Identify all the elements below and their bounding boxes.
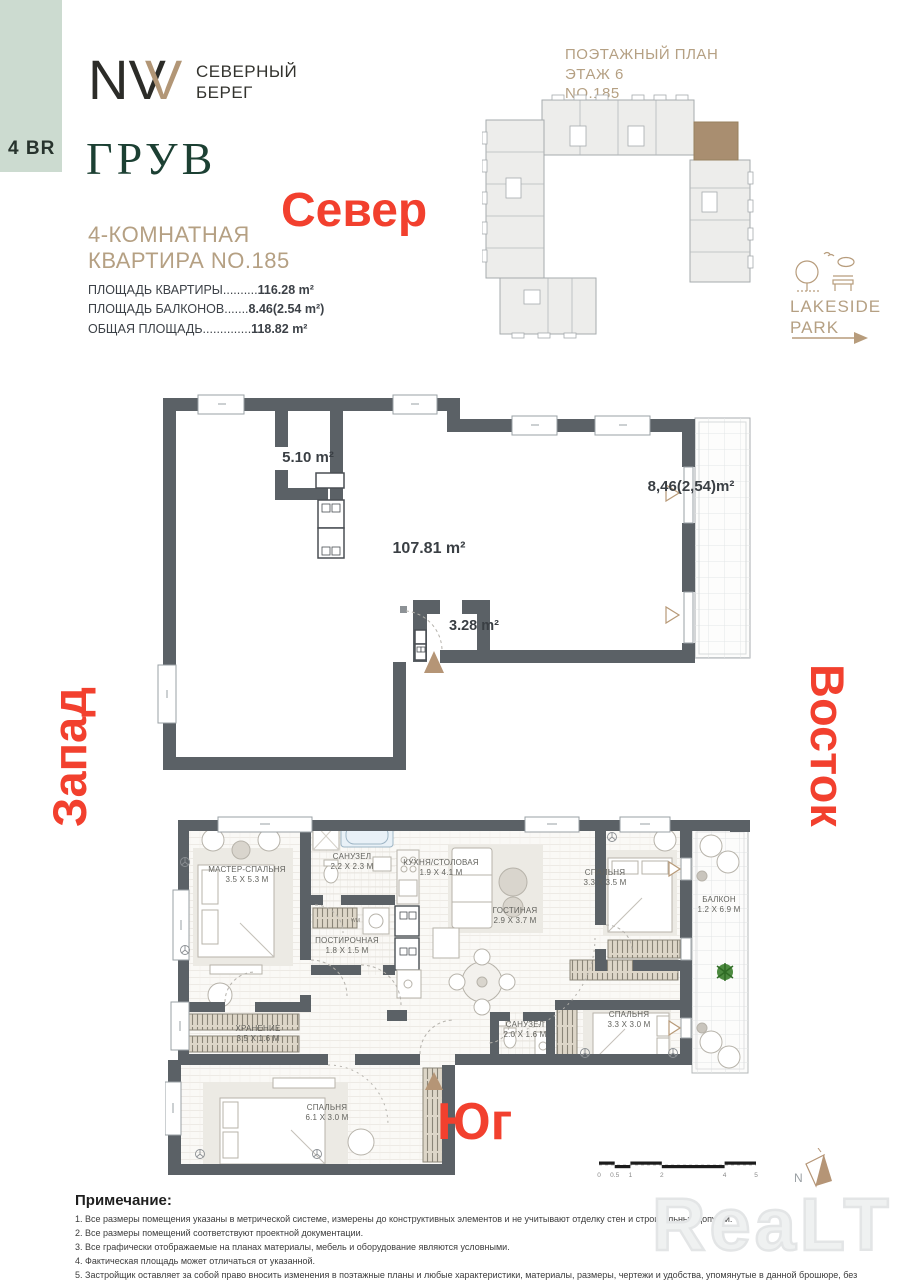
room-label-master-bedroom: МАСТЕР-СПАЛЬНЯ 3.5 x 5.3 m [197, 865, 297, 886]
schematic-shafts [316, 473, 426, 660]
balcony-door-arrows [666, 485, 679, 623]
area-label-small-room: 5.10 m² [268, 449, 348, 466]
floor-key-line2: ЭТАЖ 6 [565, 65, 718, 85]
area-label-balcony: 8,46(2,54)m² [631, 478, 751, 495]
scale-bar: 0 0.5 1 2 4 5 [597, 1155, 762, 1181]
spec-dots: .............. [203, 322, 252, 336]
spec-label: ПЛОЩАДЬ КВАРТИРЫ [88, 283, 223, 297]
area-specs: ПЛОЩАДЬ КВАРТИРЫ..........116.28 m² ПЛОЩ… [88, 281, 324, 339]
apartment-title: 4-КОМНАТНАЯ КВАРТИРА NO.185 [88, 222, 290, 275]
highlighted-unit [694, 122, 738, 160]
room-label-bedroom-right: СПАЛЬНЯ 3.3 x 3.0 m [594, 1010, 664, 1031]
floor-key-line1: ПОЭТАЖНЫЙ ПЛАН [565, 45, 718, 65]
washer-label: WM [351, 918, 360, 924]
note-item-5: 5. Застройщик оставляет за собой право в… [75, 1269, 895, 1280]
scale-tick-05: 0.5 [610, 1172, 619, 1179]
tree-bench-cloud-icons [796, 253, 854, 292]
room-label-storage: ХРАНЕНИЕ 3.5 x 1.6 m [220, 1024, 296, 1045]
project-name: ГРУВ [86, 132, 216, 185]
apartment-title-line1: 4-КОМНАТНАЯ [88, 222, 290, 248]
area-label-bath: 3.28 m² [434, 618, 514, 634]
room-label-balcony: БАЛКОН 1.2 x 6.9 m [689, 895, 749, 916]
direction-south: Юг [437, 1092, 512, 1152]
room-label-bedroom-bottom: СПАЛЬНЯ 6.1 x 3.0 m [292, 1103, 362, 1124]
room-label-kitchen-dining: КУХНЯ/СТОЛОВАЯ 1.9 x 4.1 m [403, 858, 479, 879]
brochure-page: 4 BR N V V СЕВЕРНЫЙ БЕРЕГ ГРУВ 4-КОМНАТН… [0, 0, 905, 1280]
spec-row-apartment-area: ПЛОЩАДЬ КВАРТИРЫ..........116.28 m² [88, 281, 324, 300]
room-label-bathroom-1: САНУЗЕЛ 2.2 x 2.3 m [317, 852, 387, 873]
lakeside-line1: LAKESIDE [790, 296, 881, 317]
schematic-walls [163, 398, 695, 770]
scale-tick-5: 5 [754, 1172, 758, 1179]
schematic-floor-plan: 5.10 m² 107.81 m² 3.28 m² 8,46(2,54)m² [148, 385, 770, 805]
brand-name-line2: БЕРЕГ [196, 83, 297, 104]
direction-north: Север [281, 183, 427, 238]
spec-label: ОБЩАЯ ПЛОЩАДЬ [88, 322, 203, 336]
schematic-balcony [695, 418, 750, 658]
room-label-laundry: ПОСТИРОЧНАЯ 1.8 x 1.5 m [307, 936, 387, 957]
spec-label: ПЛОЩАДЬ БАЛКОНОВ [88, 302, 224, 316]
spec-value: 8.46(2.54 m²) [249, 302, 325, 316]
direction-west: Запад [42, 652, 100, 862]
realt-watermark: ReaLT [652, 1182, 893, 1267]
scale-tick-4: 4 [723, 1172, 727, 1179]
room-label-bathroom-2: САНУЗЕЛ 2.0 x 1.6 m [490, 1020, 560, 1041]
scale-bar-ticks: 0 0.5 1 2 4 5 [597, 1172, 758, 1179]
scale-tick-2: 2 [660, 1172, 664, 1179]
spec-value: 118.82 m² [251, 322, 307, 336]
building-minimap [482, 92, 762, 344]
lakeside-park-icons [791, 250, 869, 296]
area-label-main: 107.81 m² [379, 540, 479, 558]
spec-dots: .......... [223, 283, 258, 297]
apartment-title-line2: КВАРТИРА NO.185 [88, 248, 290, 274]
spec-dots: ....... [224, 302, 248, 316]
direction-east: Восток [793, 628, 855, 863]
brand-name-line1: СЕВЕРНЫЙ [196, 62, 297, 83]
spec-row-balcony-area: ПЛОЩАДЬ БАЛКОНОВ.......8.46(2.54 m²) [88, 300, 324, 319]
logo-letter-v2: V [145, 52, 180, 108]
schematic-windows [158, 395, 693, 723]
spec-row-total-area: ОБЩАЯ ПЛОЩАДЬ..............118.82 m² [88, 320, 324, 339]
scale-tick-0: 0 [597, 1172, 601, 1179]
bedrooms-badge: 4 BR [8, 138, 62, 160]
developer-logo: N V V [88, 52, 180, 108]
brand-name: СЕВЕРНЫЙ БЕРЕГ [196, 62, 297, 103]
room-label-living-room: ГОСТИНАЯ 2.9 x 3.7 m [480, 906, 550, 927]
schematic-plan-drawing [148, 385, 770, 805]
spec-value: 116.28 m² [258, 283, 314, 297]
scale-tick-1: 1 [629, 1172, 633, 1179]
logo-letter-n: N [88, 52, 126, 108]
lakeside-direction-arrow [792, 332, 868, 344]
room-label-bedroom-top: СПАЛЬНЯ 3.3 x 3.5 m [570, 868, 640, 889]
